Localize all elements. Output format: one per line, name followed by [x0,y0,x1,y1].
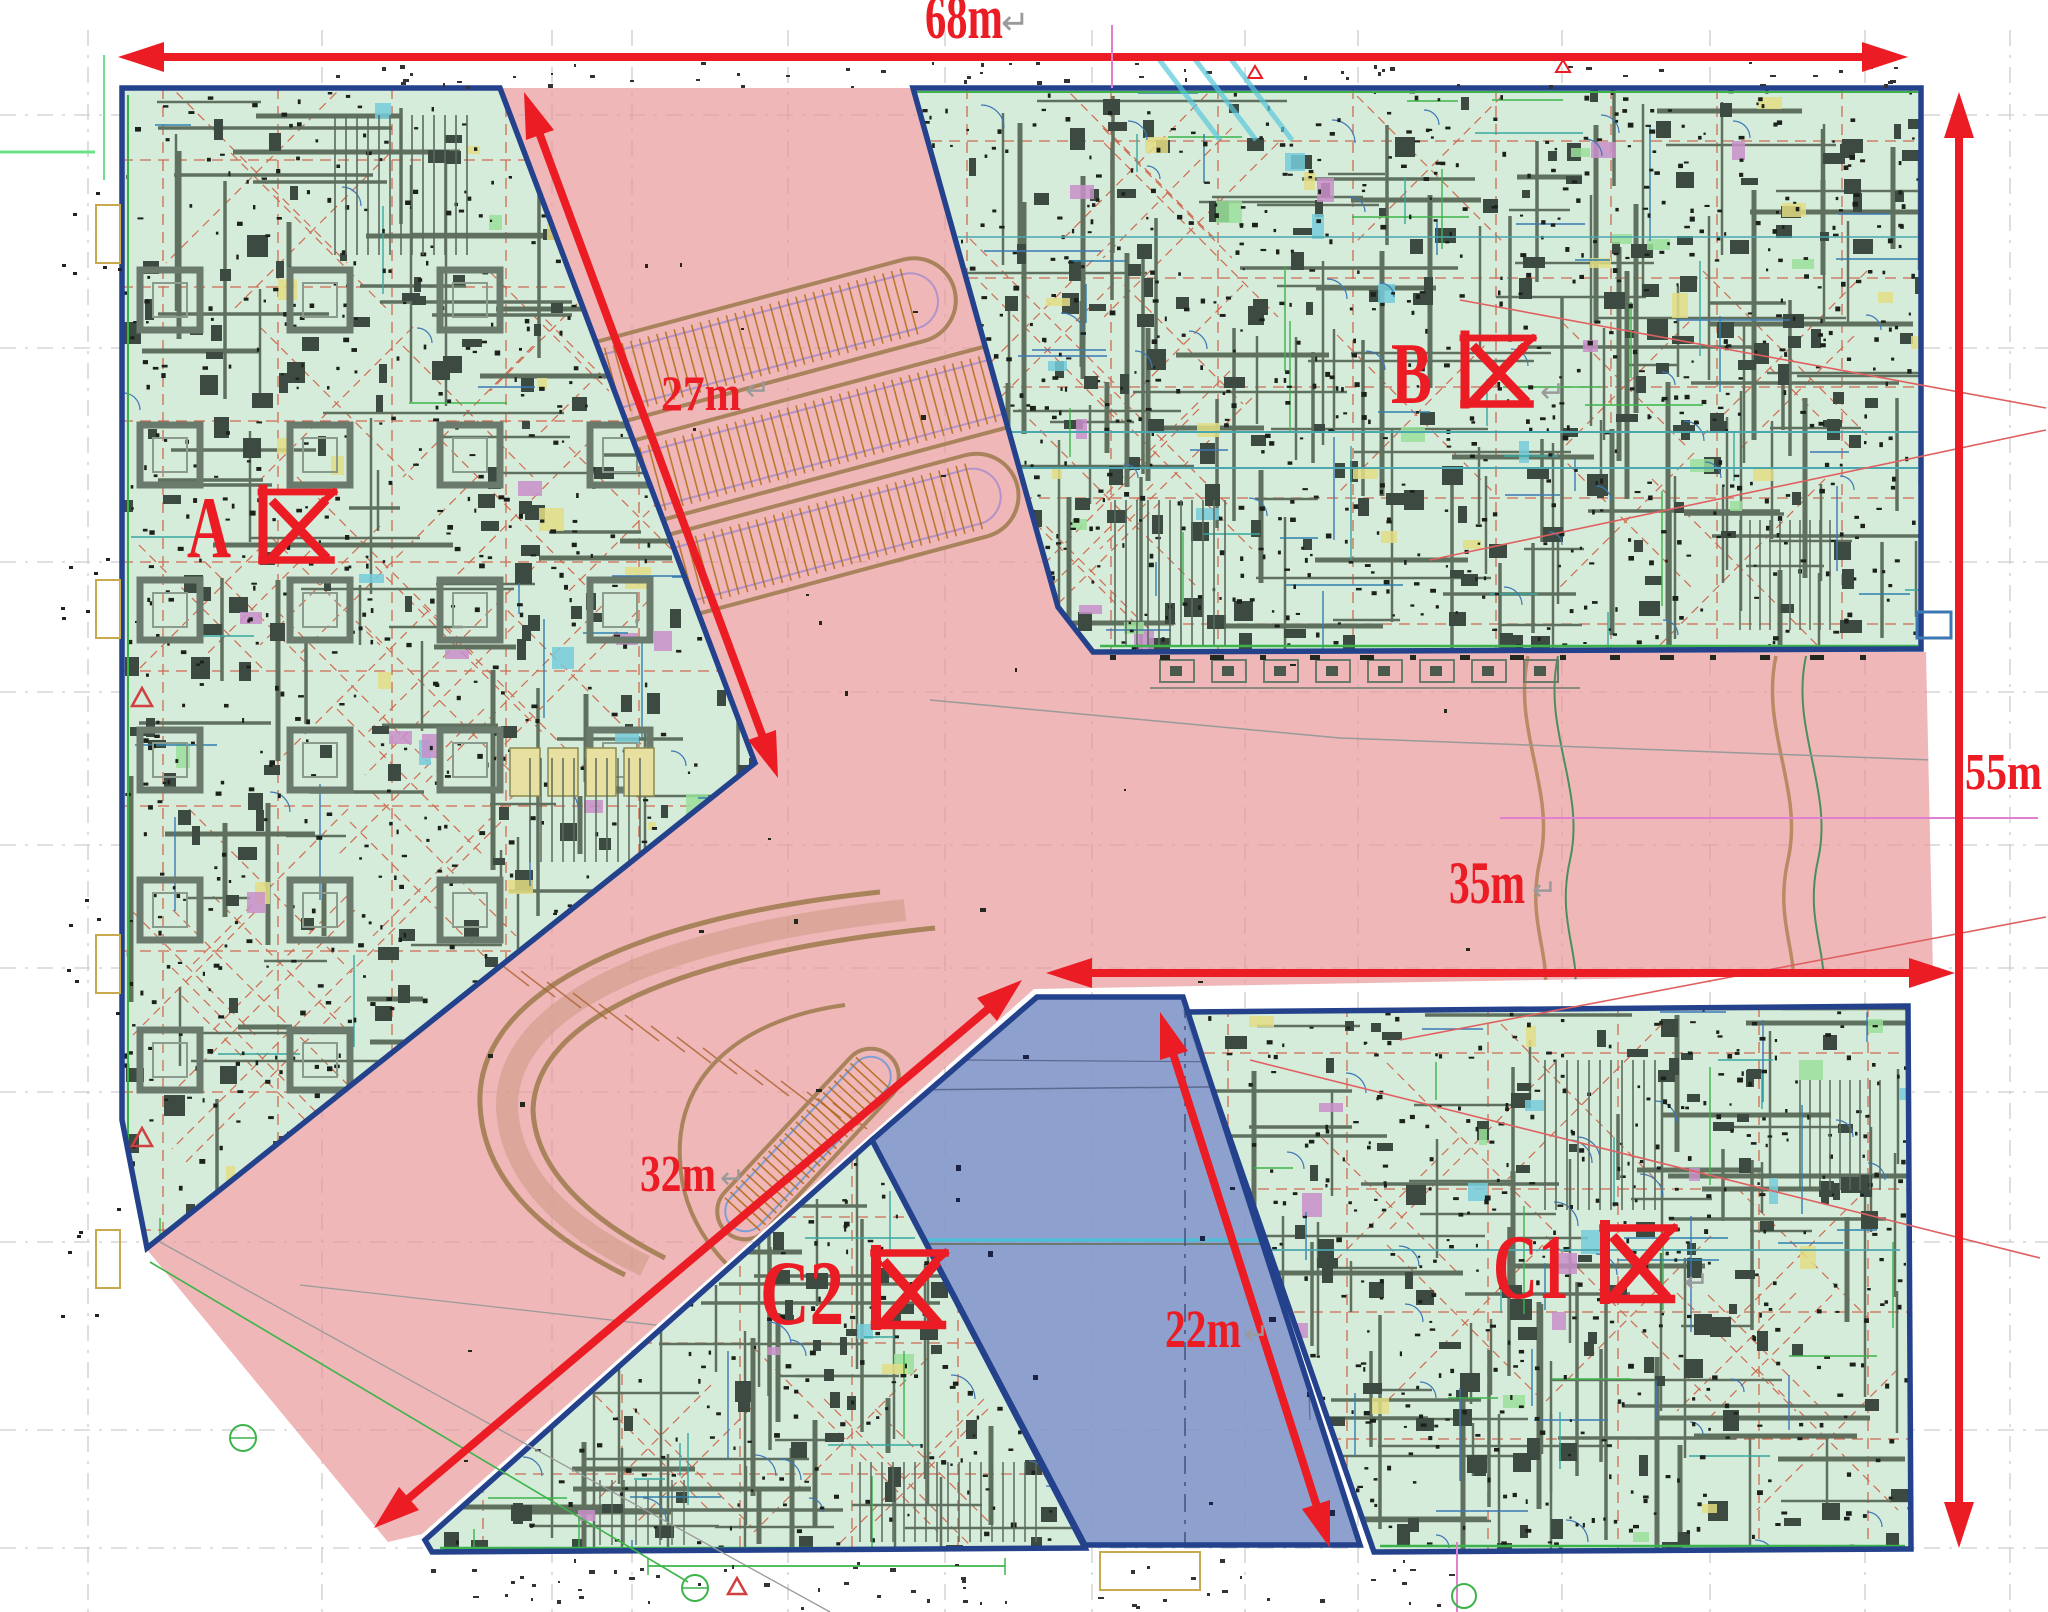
svg-text:↵: ↵ [1684,1266,1709,1299]
svg-text:B: B [1391,326,1432,423]
svg-text:27m: 27m [661,365,741,421]
svg-text:↵: ↵ [1244,1318,1269,1351]
svg-text:55m: 55m [1965,744,2042,801]
svg-text:22m: 22m [1165,1299,1241,1359]
svg-text:C2: C2 [760,1242,844,1344]
svg-text:↵: ↵ [720,1162,745,1195]
svg-text:32m: 32m [640,1146,716,1203]
svg-text:68m: 68m [925,0,1003,52]
svg-text:C1: C1 [1493,1216,1569,1318]
svg-text:↵: ↵ [745,374,770,407]
svg-text:↵: ↵ [1001,4,1030,42]
svg-text:↵: ↵ [1532,874,1557,907]
svg-text:A: A [187,480,231,577]
svg-text:↵: ↵ [1540,376,1565,409]
svg-text:35m: 35m [1449,850,1525,916]
